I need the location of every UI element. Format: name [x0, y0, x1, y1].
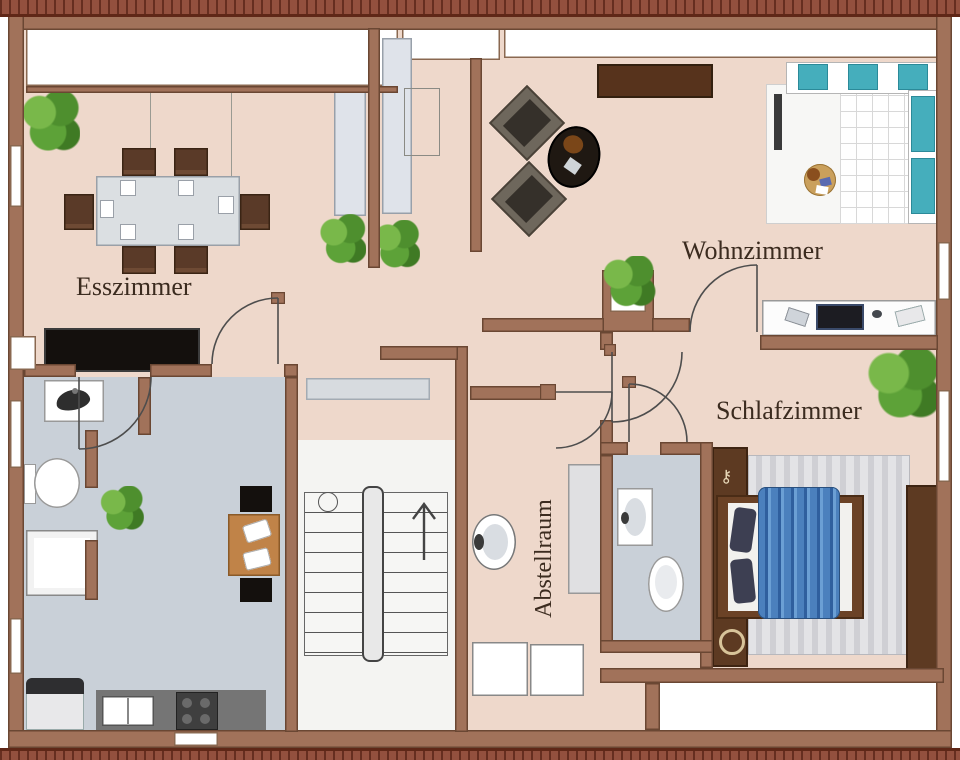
place-setting — [218, 196, 234, 214]
hook-icon: ⚷ — [720, 467, 738, 487]
computer — [816, 304, 864, 330]
window — [10, 145, 22, 207]
armchair-seat — [503, 99, 551, 147]
wall — [645, 683, 660, 730]
faucet — [621, 512, 629, 524]
room-label-abstellraum: Abstellraum — [514, 478, 574, 638]
wall — [284, 364, 298, 377]
wall — [85, 540, 98, 600]
sink-divider — [127, 698, 129, 724]
basin — [482, 524, 508, 560]
shelf — [306, 378, 430, 400]
room-label-esszimmer: Esszimmer — [76, 272, 192, 302]
door-pivot — [604, 344, 616, 356]
wall — [470, 386, 542, 400]
toilet-bowl — [34, 458, 80, 508]
below-bedroom-floor — [660, 683, 938, 734]
room-label-wohnzimmer: Wohnzimmer — [682, 236, 823, 266]
esszimmer-window-band — [26, 28, 398, 86]
plant — [320, 214, 366, 266]
wall — [285, 377, 298, 732]
burner — [200, 714, 210, 724]
wall — [368, 28, 380, 268]
storage-box — [530, 644, 584, 696]
fridge — [26, 678, 84, 730]
dining-chair — [240, 194, 270, 230]
wall — [600, 668, 944, 683]
window — [10, 336, 36, 370]
sideboard — [597, 64, 713, 98]
corridor-window — [402, 28, 500, 60]
paper — [815, 185, 828, 195]
armchair-seat — [505, 175, 553, 223]
blanket — [758, 487, 840, 619]
hall-chair — [240, 486, 272, 512]
room-label-schlafzimmer: Schlafzimmer — [716, 396, 862, 426]
wc-sink — [617, 488, 653, 546]
dining-chair — [174, 148, 208, 176]
wall — [482, 318, 604, 332]
floor-lamp — [774, 94, 782, 150]
roof-edge-bottom — [0, 748, 960, 760]
window — [10, 618, 22, 674]
wall — [936, 14, 952, 748]
kitchen-sink — [102, 696, 154, 726]
burner — [200, 698, 210, 708]
room-label-abstellraum-text: Abstellraum — [531, 499, 558, 618]
wall — [85, 430, 98, 488]
storage-box — [472, 642, 528, 696]
wall — [652, 318, 690, 332]
burner — [182, 698, 192, 708]
dining-chair — [122, 148, 156, 176]
sofa-cushion — [911, 158, 935, 214]
wc-floor — [613, 455, 700, 640]
mirror-icon — [719, 629, 745, 655]
plant — [866, 348, 942, 420]
wall — [470, 58, 482, 252]
plant — [100, 486, 144, 532]
sofa-cushion — [848, 64, 878, 90]
plant — [374, 220, 420, 270]
wall — [150, 364, 212, 377]
bath-sink — [44, 380, 104, 422]
window — [938, 242, 950, 300]
wall — [455, 346, 468, 732]
sofa-seat — [840, 94, 908, 224]
wall — [760, 335, 938, 350]
sofa-cushion — [911, 96, 935, 152]
window — [174, 732, 218, 746]
cabinet — [334, 90, 366, 216]
stove — [176, 692, 218, 730]
door-pivot — [622, 376, 636, 388]
place-setting — [120, 224, 136, 240]
toilet-seat — [655, 565, 677, 599]
dining-chair — [122, 246, 156, 274]
fridge-top — [26, 678, 84, 694]
wall — [138, 377, 151, 435]
sofa-cushion — [898, 64, 928, 90]
wc-toilet — [648, 556, 684, 612]
place-setting — [100, 200, 114, 218]
sofa-cushion — [798, 64, 828, 90]
window — [10, 400, 22, 468]
wall — [700, 442, 713, 668]
mouse — [872, 310, 882, 318]
plant — [602, 256, 656, 308]
stair-railing — [362, 486, 384, 662]
faucet — [474, 534, 484, 550]
kitchen-table — [228, 514, 280, 576]
bowl — [561, 133, 585, 156]
wall — [600, 455, 613, 653]
floor-plan: ⚷ — [0, 0, 960, 760]
washbasin — [472, 514, 516, 570]
wall — [8, 730, 952, 748]
wall — [380, 346, 458, 360]
faucet — [72, 388, 78, 394]
roof-edge-top — [0, 0, 960, 17]
place-setting — [120, 180, 136, 196]
burner — [182, 714, 192, 724]
place-setting — [178, 224, 194, 240]
wall — [600, 442, 628, 455]
place-setting — [178, 180, 194, 196]
wohnzimmer-window-band — [504, 28, 938, 58]
table-chair — [242, 547, 272, 571]
wardrobe — [906, 485, 938, 675]
door-pivot — [540, 384, 556, 400]
door-pivot — [271, 292, 285, 304]
tray — [563, 157, 581, 175]
dining-chair — [174, 246, 208, 274]
wall — [26, 86, 398, 93]
cabinet-outline — [404, 88, 440, 156]
pillow — [730, 558, 756, 604]
round-table — [804, 164, 836, 196]
window — [938, 390, 950, 482]
toilet — [24, 458, 80, 510]
stair-post-circle — [318, 492, 338, 512]
wall — [600, 640, 713, 653]
plant — [22, 90, 80, 154]
dining-chair — [64, 194, 94, 230]
table-chair — [242, 518, 272, 543]
hall-chair — [240, 578, 272, 602]
